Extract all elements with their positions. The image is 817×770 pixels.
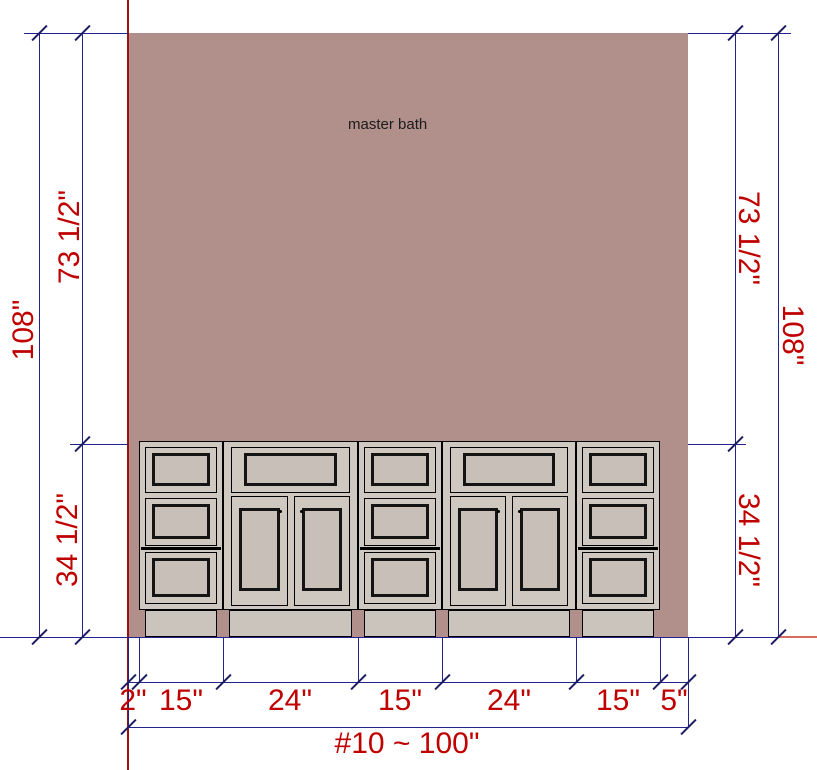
toe-kick xyxy=(229,610,352,637)
cabinet-door-base-2 xyxy=(442,441,576,610)
cabinet-rail xyxy=(578,547,658,550)
extension-line-bottom xyxy=(223,637,224,682)
drawer-front xyxy=(364,498,436,546)
dimension-label-right-upper: 73 1/2" xyxy=(731,191,765,285)
drawer-panel xyxy=(589,453,647,486)
toe-kick xyxy=(582,610,654,637)
drawer-panel xyxy=(463,453,555,486)
dimension-label-right-lower: 34 1/2" xyxy=(731,493,765,587)
dimension-label-segment: 15" xyxy=(378,684,422,718)
drawer-front xyxy=(582,447,654,493)
drawer-panel xyxy=(371,453,429,486)
drawer-front xyxy=(364,447,436,493)
drawer-front xyxy=(231,447,350,493)
dimension-label-segment: 2" xyxy=(119,684,146,718)
extension-line-bottom xyxy=(358,637,359,682)
door-knob xyxy=(300,510,303,513)
dimension-label-segment: 15" xyxy=(159,684,203,718)
room-label: master bath xyxy=(348,116,427,133)
door-knob xyxy=(279,510,282,513)
door-knob xyxy=(497,510,500,513)
drawer-panel xyxy=(152,558,210,597)
extension-line-counter-right xyxy=(688,444,746,445)
door-right xyxy=(294,496,350,606)
cabinet-door-base-1 xyxy=(223,441,358,610)
drawer-front xyxy=(364,552,436,604)
drawer-panel xyxy=(152,453,210,486)
door-panel xyxy=(302,508,342,591)
drawer-panel xyxy=(371,504,429,539)
extension-line-bottom xyxy=(660,637,661,682)
drawer-front xyxy=(145,498,217,546)
door-right xyxy=(512,496,568,606)
floor-reference-line xyxy=(778,636,817,638)
drawer-front xyxy=(582,498,654,546)
drawer-panel xyxy=(589,504,647,539)
floor-line xyxy=(0,637,778,638)
drawer-front xyxy=(582,552,654,604)
dimension-label-left-total: 108" xyxy=(7,300,41,361)
dimension-label-total-width: #10 ~ 100" xyxy=(335,727,480,761)
dimension-label-segment: 5" xyxy=(660,684,687,718)
dimension-label-segment: 24" xyxy=(268,684,312,718)
dimension-label-left-lower: 34 1/2" xyxy=(51,493,85,587)
cabinet-rail xyxy=(141,547,221,550)
drawer-panel xyxy=(244,453,337,486)
toe-kick xyxy=(448,610,570,637)
drawer-front xyxy=(145,447,217,493)
dimension-line-bottom-segments xyxy=(128,682,688,683)
door-panel xyxy=(239,508,280,591)
toe-kick xyxy=(145,610,217,637)
extension-line-bottom xyxy=(442,637,443,682)
door-panel xyxy=(458,508,498,591)
toe-kick xyxy=(364,610,436,637)
dimension-label-right-total: 108" xyxy=(775,305,809,366)
drawer-panel xyxy=(589,558,647,597)
door-left xyxy=(450,496,506,606)
extension-line-bottom xyxy=(576,637,577,682)
drawer-front xyxy=(145,552,217,604)
door-left xyxy=(231,496,288,606)
dimension-label-left-upper: 73 1/2" xyxy=(53,190,87,284)
door-panel xyxy=(520,508,560,591)
dimension-label-segment: 15" xyxy=(596,684,640,718)
cabinet-drawer-base-2 xyxy=(358,441,442,610)
door-knob xyxy=(518,510,521,513)
drawer-front xyxy=(450,447,568,493)
drawer-panel xyxy=(152,504,210,539)
drawer-panel xyxy=(371,558,429,597)
cabinet-drawer-base-1 xyxy=(139,441,223,610)
dimension-label-segment: 24" xyxy=(487,684,531,718)
cabinet-drawer-base-3 xyxy=(576,441,660,610)
cabinet-rail xyxy=(360,547,440,550)
extension-line-bottom xyxy=(139,637,140,682)
elevation-canvas: master bath xyxy=(0,0,817,770)
